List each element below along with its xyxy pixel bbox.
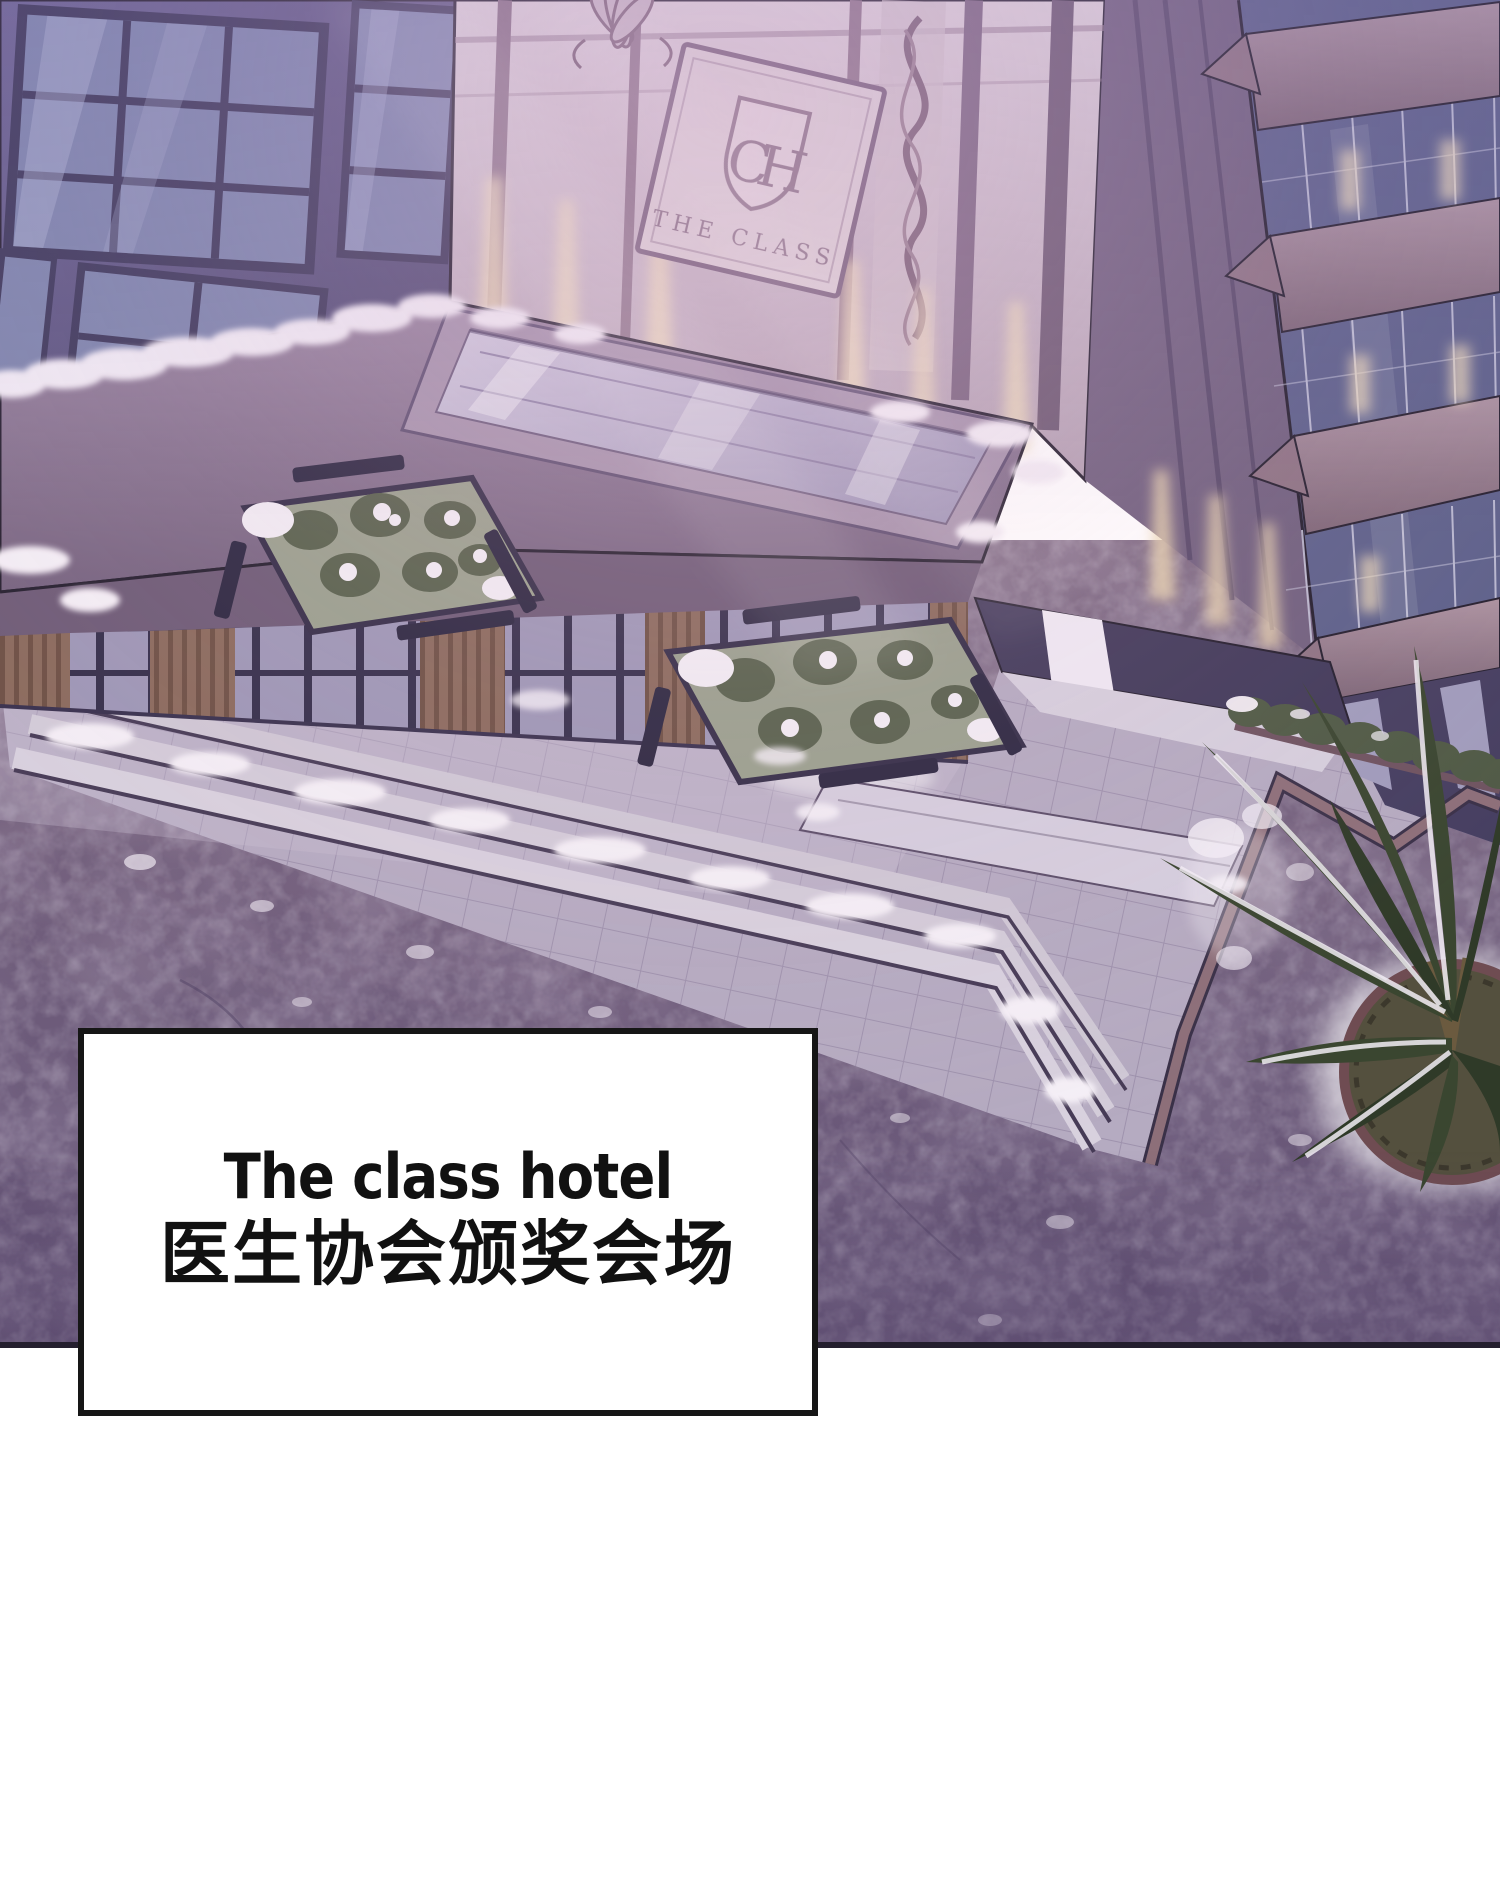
caption-venue-text: 医生协会颁奖会场 [160,1218,736,1292]
caption-hotel-name: The class hotel [224,1146,673,1208]
caption-box: The class hotel 医生协会颁奖会场 [78,1028,818,1416]
hotel-scene-panel: CH THE CLASS [0,0,1500,1348]
webtoon-page: CH THE CLASS [0,0,1500,1890]
